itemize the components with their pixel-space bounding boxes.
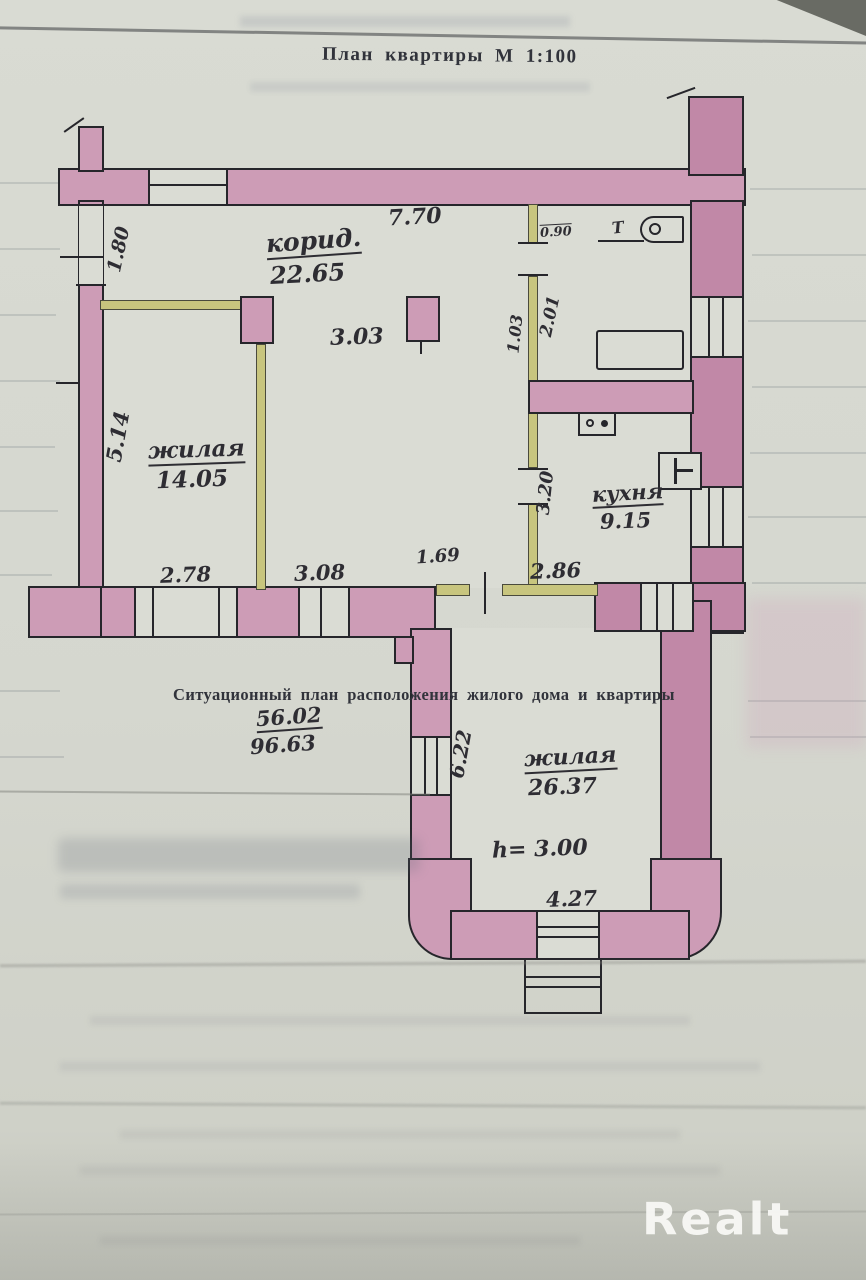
stove-burner-right-icon (601, 420, 608, 427)
partition-living1-top (100, 300, 242, 310)
margin-line-r3 (748, 320, 866, 322)
room-area-living1: 14.05 (156, 467, 229, 492)
margin-line-r1 (750, 188, 866, 190)
glazing-right-2a (708, 488, 710, 546)
window-bottom-1 (134, 586, 238, 638)
window-bottom-2 (298, 586, 350, 638)
room-area-corridor: 22.65 (269, 260, 345, 288)
realt-watermark: Realt (642, 1193, 792, 1245)
margin-line-r5 (750, 452, 866, 454)
room-label-living1: жилая (148, 436, 246, 466)
balcony-rail-b (526, 986, 600, 988)
glazing-right-1a (708, 298, 710, 356)
dark-corner (742, 0, 866, 36)
tick-bath-door-top (518, 242, 548, 244)
margin-line-r9 (750, 736, 866, 738)
bleed-row-4 (80, 1166, 720, 1175)
bleed-row-5 (100, 1236, 580, 1245)
bleed-text-blur-2 (250, 82, 590, 92)
balcony-rail-a (526, 976, 600, 978)
label-toilet: Т (611, 219, 625, 236)
dim-lower-bottom: 4.27 (546, 887, 598, 910)
partition-bottom-b (502, 584, 598, 596)
margin-line-r8 (748, 700, 866, 702)
margin-line-r7 (752, 582, 866, 584)
margin-line-r4 (752, 386, 866, 388)
label-ceiling-height: h= 3.00 (492, 836, 588, 861)
margin-line-l2 (0, 248, 60, 250)
glazing-bottom-3b (672, 584, 674, 630)
glazing-bottom-3a (656, 584, 658, 630)
dim-bath-left: 1.03 (505, 314, 525, 354)
margin-line-l5 (0, 446, 55, 448)
bleed-row-1 (90, 1016, 690, 1025)
wall-bath-bottom (528, 380, 694, 414)
bleed-row-2 (60, 1062, 760, 1071)
bathtub-icon (596, 330, 684, 370)
dim-tick-left-outer (56, 382, 80, 384)
crease-lower-2 (0, 1102, 866, 1110)
bleed-row-3 (120, 1130, 680, 1139)
margin-line-l3 (0, 314, 56, 316)
opening-end-top (76, 204, 106, 206)
balcony-front (524, 1012, 602, 1014)
dim-top-width: 7.70 (387, 205, 442, 230)
dim-bottom-a: 2.78 (160, 563, 212, 586)
dim-tick-left-opening (60, 256, 104, 258)
stove-pier-corridor (406, 296, 440, 342)
lower-wall-left-notch (394, 636, 414, 664)
crease-mid-left (0, 790, 430, 795)
toilet-shelf-line (598, 240, 644, 242)
fold-line-top (0, 26, 866, 44)
partition-living1-side (256, 344, 266, 590)
opening-end-bottom (76, 284, 106, 286)
window-bottom-3 (640, 582, 694, 632)
margin-line-l1 (0, 182, 58, 184)
crease-lower-1 (0, 960, 866, 968)
stove-pier-tick (420, 342, 422, 354)
stove-burner-left-icon (586, 419, 594, 427)
wall-right (690, 200, 744, 634)
window-right-1 (690, 296, 744, 358)
room-label-living2: жилая (523, 744, 617, 775)
balcony-door-line-b (538, 936, 598, 938)
scanned-floor-plan-page: План квартиры М 1:100 (0, 0, 866, 1280)
stove-icon (578, 412, 616, 436)
wall-stub-top-right (688, 96, 744, 176)
wall-bottom-left-ext (28, 586, 106, 638)
dim-bottom-c: 1.69 (415, 546, 460, 567)
window-right-2 (690, 486, 744, 548)
glazing-lower-left-b (436, 738, 438, 794)
bleed-bold-text-2 (60, 884, 360, 899)
room-area-living2: 26.37 (528, 775, 598, 799)
toilet-bowl-icon (649, 223, 661, 235)
page-title: План квартиры М 1:100 (322, 45, 578, 69)
balcony-door-line-a (538, 926, 598, 928)
bleed-bold-text-1 (58, 838, 420, 872)
toilet-icon (640, 216, 684, 243)
area-fraction-top: 56.02 (255, 704, 322, 734)
glazing-bottom-2 (320, 588, 322, 636)
partition-bottom-a (436, 584, 470, 596)
partition-bath-mid (528, 276, 538, 468)
margin-line-l6 (0, 510, 58, 512)
margin-line-l4 (0, 380, 60, 382)
glazing-bottom-1a (152, 588, 154, 636)
window-top-wall (148, 168, 228, 206)
margin-line-l7 (0, 574, 52, 576)
dim-bottom-b: 3.08 (294, 561, 346, 584)
stove-pier-living1 (240, 296, 274, 344)
label-corridor-width: 3.03 (330, 325, 384, 349)
margin-line-l8 (0, 690, 60, 692)
margin-line-r2 (752, 254, 866, 256)
label-bath-door: 0.90 (540, 223, 572, 240)
room-area-kitchen: 9.15 (600, 509, 652, 532)
balcony-side-right (600, 958, 602, 1014)
glazing-top-wall (150, 184, 226, 186)
pink-smudge-right (746, 598, 866, 748)
sink-line-h (677, 469, 693, 472)
glazing-right-2b (722, 488, 724, 546)
tick-bath-door-bottom (518, 274, 548, 276)
door-opening-left-wall (79, 206, 103, 286)
dim-bottom-d: 2.86 (530, 559, 582, 582)
room-label-kitchen: кухня (591, 480, 664, 509)
margin-line-r6 (748, 516, 866, 518)
tick-corridor-door-cross (484, 572, 486, 614)
area-fraction-bottom: 96.63 (249, 732, 316, 758)
situational-heading: Ситуационный план расположения жилого до… (173, 686, 675, 704)
partition-bath-upper (528, 204, 538, 244)
balcony-door (536, 910, 600, 960)
glazing-right-1b (722, 298, 724, 356)
dim-kitchen-left: 3.20 (535, 470, 557, 515)
glazing-bottom-1b (218, 588, 220, 636)
glazing-lower-left-a (424, 738, 426, 794)
wall-stub-top-left (78, 126, 104, 172)
margin-line-l9 (0, 756, 64, 758)
bleed-text-blur-1 (240, 16, 570, 27)
